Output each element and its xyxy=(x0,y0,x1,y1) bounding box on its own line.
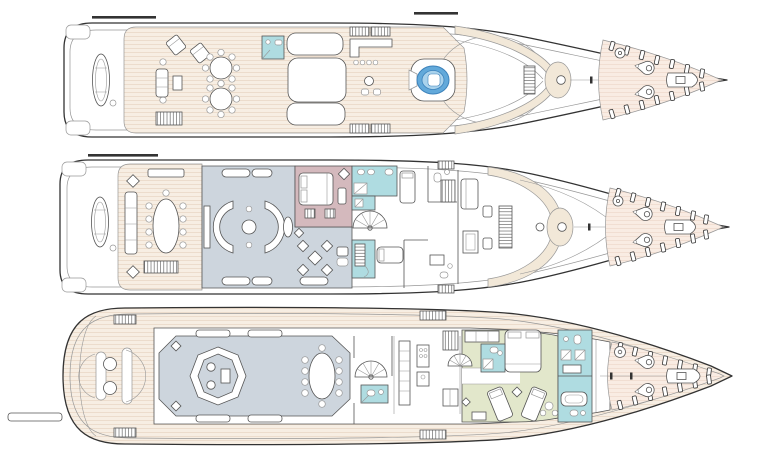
davit-crane xyxy=(110,245,116,251)
mast-bar xyxy=(92,16,156,19)
pillow xyxy=(301,176,307,188)
tv-cabinet xyxy=(204,206,210,248)
stern-stair-pod xyxy=(66,25,90,39)
vanity xyxy=(563,365,581,373)
chair xyxy=(362,89,369,95)
yacht-deck-plan-sheet xyxy=(0,0,765,450)
desk xyxy=(472,412,486,420)
bench xyxy=(252,277,272,285)
sideboard xyxy=(148,169,184,177)
settee xyxy=(461,179,478,209)
stern-stairs xyxy=(114,315,136,324)
day-head xyxy=(262,36,284,59)
pillow xyxy=(526,332,539,338)
mast xyxy=(557,76,566,85)
sink xyxy=(379,390,384,395)
coffee-table xyxy=(221,369,230,383)
helm-chair xyxy=(483,238,492,249)
foredeck xyxy=(599,40,724,120)
boom-bar xyxy=(88,154,158,157)
vent-grate xyxy=(524,66,535,94)
sink xyxy=(448,264,453,269)
deck-seat xyxy=(104,382,117,395)
toilet xyxy=(574,335,581,344)
side-gate xyxy=(420,311,446,320)
stern-stair-pod xyxy=(66,121,90,135)
side-gate xyxy=(438,285,454,293)
closet xyxy=(465,331,499,342)
toilet xyxy=(367,390,375,396)
toilet xyxy=(570,410,578,416)
counter xyxy=(399,341,410,405)
stern-stair-pod xyxy=(62,278,86,292)
owner-cabin xyxy=(295,166,352,227)
sink xyxy=(368,169,375,175)
jacuzzi-seat xyxy=(428,74,440,86)
davit-crane xyxy=(110,100,116,106)
sun-pad xyxy=(287,33,343,55)
wardrobe xyxy=(305,209,315,218)
helm-console xyxy=(499,206,512,248)
table xyxy=(210,57,232,79)
bench xyxy=(252,169,272,177)
sink xyxy=(358,169,365,175)
bench xyxy=(222,169,250,177)
compass xyxy=(536,223,544,231)
coffee-table xyxy=(173,76,182,90)
oval-dining-table xyxy=(309,353,335,399)
pillow xyxy=(379,249,384,261)
bench xyxy=(222,277,250,285)
rescue-tender xyxy=(665,220,696,234)
stern-stairs xyxy=(114,428,136,437)
side-table xyxy=(160,97,166,103)
wardrobe xyxy=(325,209,335,218)
helm-chair xyxy=(483,206,492,217)
stern-stair-pod xyxy=(62,162,86,176)
windlass xyxy=(613,196,623,206)
armchair xyxy=(337,247,348,256)
round-table xyxy=(242,220,256,234)
stairs xyxy=(443,331,458,350)
sink xyxy=(445,170,450,175)
bar-stool xyxy=(373,60,378,65)
windlass xyxy=(615,48,625,58)
bar-stool xyxy=(354,60,359,65)
toilet xyxy=(385,169,393,175)
toilet xyxy=(434,173,441,182)
side-gate xyxy=(420,430,446,439)
bridge-deck-plan xyxy=(60,154,729,294)
sink xyxy=(266,40,270,44)
rescue-tender xyxy=(667,369,701,383)
oval-dining-table xyxy=(153,199,179,253)
pillow xyxy=(508,332,521,338)
rescue-tender xyxy=(667,73,698,87)
side-table xyxy=(160,59,166,65)
round-table xyxy=(207,381,215,389)
deck-seat xyxy=(104,358,117,371)
antenna-bar xyxy=(414,12,458,15)
chair xyxy=(552,410,558,416)
foredeck xyxy=(606,188,724,266)
side-gate xyxy=(438,161,454,169)
sun-pad xyxy=(287,103,345,125)
sun-deck-plan xyxy=(64,12,727,137)
sink xyxy=(498,351,503,356)
table xyxy=(210,88,232,110)
side-table xyxy=(284,217,293,237)
skylight-hatch xyxy=(288,58,346,102)
stairs xyxy=(441,180,455,202)
chair xyxy=(540,410,546,416)
chair xyxy=(374,89,381,95)
fridge xyxy=(443,389,458,406)
cocktail-table xyxy=(365,77,374,86)
main-deck-plan xyxy=(8,307,732,444)
sofa xyxy=(300,277,328,285)
round-table xyxy=(207,363,215,371)
side-sofa xyxy=(125,192,137,254)
sink xyxy=(581,411,586,416)
aft-stairs xyxy=(156,112,182,125)
windlass xyxy=(615,347,626,358)
bar-stool xyxy=(367,60,372,65)
dresser xyxy=(338,188,346,204)
bar-stool xyxy=(360,60,365,65)
deck-plan-drawing xyxy=(0,0,765,450)
chart-desk xyxy=(463,231,478,253)
mast xyxy=(558,223,567,232)
day-head xyxy=(361,385,388,403)
desk xyxy=(430,255,444,265)
pillow xyxy=(301,190,307,202)
stair-lobby xyxy=(352,240,375,278)
guest-bathrooms xyxy=(558,330,592,422)
passerelle xyxy=(8,413,62,421)
toilet xyxy=(440,272,448,278)
round-dining-table-fwd xyxy=(202,80,239,117)
sink xyxy=(564,337,569,342)
toilet xyxy=(490,347,498,353)
ottoman xyxy=(337,258,348,266)
stairs-down xyxy=(355,244,365,266)
table xyxy=(545,402,553,410)
toilet xyxy=(275,40,282,45)
jacuzzi xyxy=(409,59,455,101)
aft-stairs xyxy=(144,261,178,273)
pillow xyxy=(402,173,413,178)
ensuite-bathroom xyxy=(481,344,505,372)
sofa xyxy=(156,69,168,97)
